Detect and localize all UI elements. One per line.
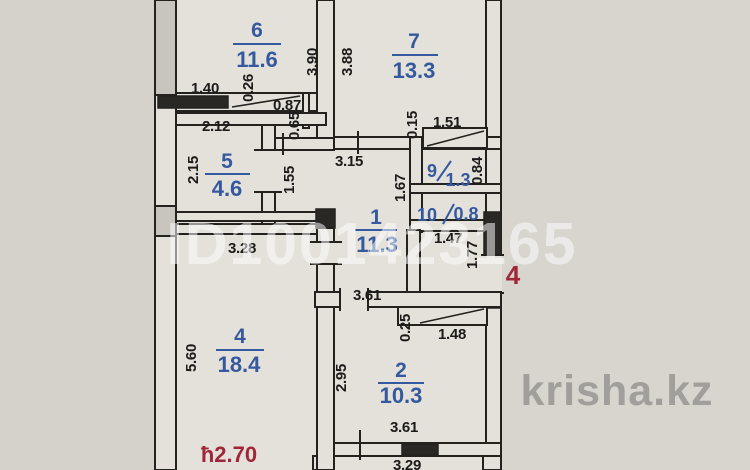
ceiling-height-note: ħ2.70 [201, 442, 257, 467]
floor-plan-scan: 1.40 0.26 0.87 0.65 3.90 3.88 2.12 2.15 … [0, 0, 750, 470]
dim-label: 0.25 [397, 314, 414, 342]
dim-label: 1.48 [438, 326, 466, 343]
dim-label: 0.26 [240, 74, 257, 102]
room-number: 4 [234, 325, 246, 348]
room-number: 9 [427, 161, 437, 181]
window-sill-bottom [402, 444, 438, 455]
room-area: 18.4 [218, 352, 262, 377]
room-area: 1.3 [445, 170, 470, 190]
room-number: 5 [221, 150, 233, 173]
wall-room5-top [176, 113, 326, 125]
dim-label: 1.67 [392, 174, 409, 202]
site-watermark: krisha.kz [520, 367, 713, 415]
floor-plan-svg: 1.40 0.26 0.87 0.65 3.90 3.88 2.12 2.15 … [0, 0, 750, 470]
dim-label: 0.65 [286, 112, 303, 140]
dim-label: 0.15 [404, 111, 421, 139]
dim-label: 2.15 [185, 156, 202, 184]
room-number: 7 [408, 30, 420, 53]
dim-label: 3.61 [353, 287, 381, 304]
room-area: 4.6 [212, 176, 243, 201]
room-area: 10.3 [380, 383, 423, 408]
dim-label: 5.60 [183, 344, 200, 372]
dim-label: 3.29 [393, 457, 421, 470]
wall-room5-right-upper [262, 125, 275, 150]
dim-label: 1.40 [191, 80, 219, 97]
room-number: 2 [395, 359, 407, 382]
wall-stub-bottom-right [483, 456, 501, 470]
dim-label: 2.12 [202, 118, 230, 135]
room-number: 6 [251, 19, 263, 42]
dim-label: 3.61 [390, 419, 418, 436]
dim-label: 3.15 [335, 153, 363, 170]
dim-label: 3.88 [339, 48, 356, 76]
wall-room2-top-right [368, 292, 501, 307]
listing-id-watermark: ID1001423165 [166, 211, 577, 277]
dim-label: 1.51 [433, 114, 461, 131]
wall-room2-top-left [315, 292, 340, 307]
dim-label: 0.87 [273, 97, 301, 114]
dim-label: 1.55 [281, 166, 298, 194]
room-area: 13.3 [393, 58, 436, 83]
dim-label: 0.84 [469, 156, 486, 185]
room-area: 11.6 [236, 47, 278, 72]
window-band-room6 [158, 96, 228, 108]
wall-outer-left-top-segment [155, 0, 176, 95]
dim-label: 3.90 [304, 48, 321, 76]
dim-label: 2.95 [333, 364, 350, 392]
